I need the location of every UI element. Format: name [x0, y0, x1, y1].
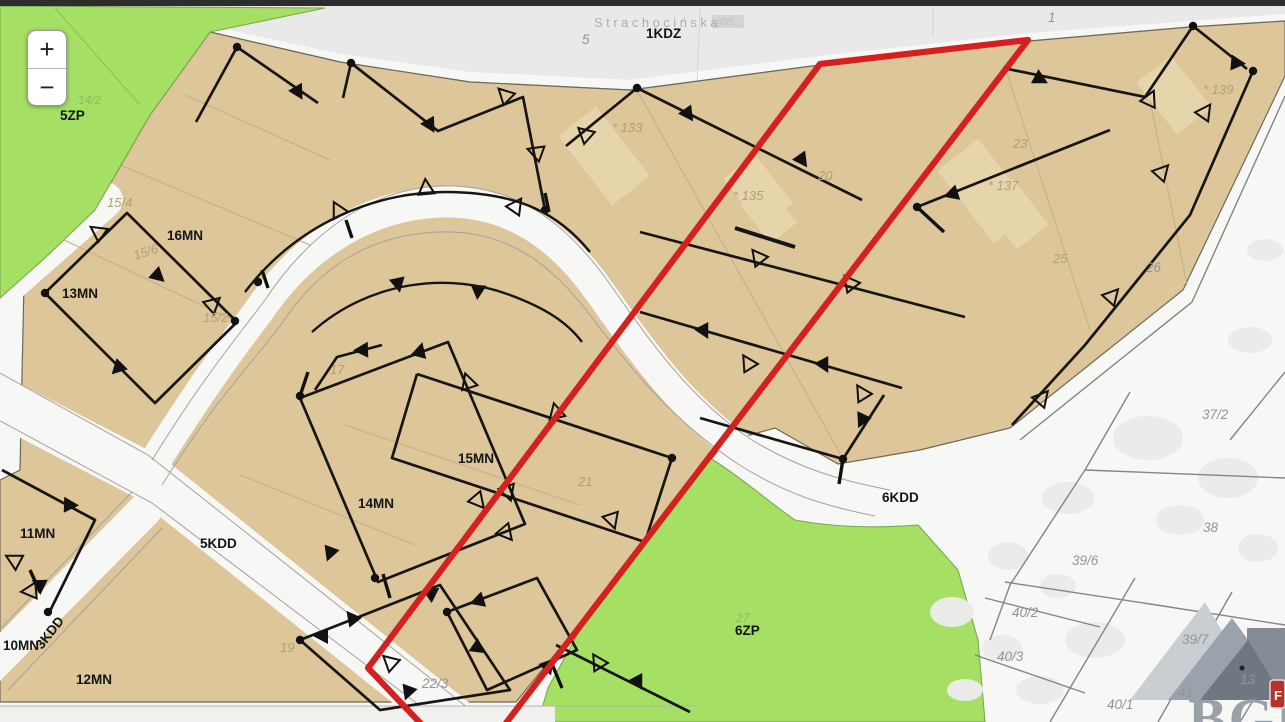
map-label-14-2: 14/2	[78, 93, 102, 107]
map-label-15-4: 15/4	[107, 195, 132, 210]
map-label-17: 17	[330, 362, 345, 377]
map-label-13mn: 13MN	[62, 286, 98, 301]
map-label-1: 1	[1048, 10, 1056, 25]
setback-node-dot	[633, 84, 641, 92]
setback-node-dot	[41, 289, 49, 297]
setback-node-dot	[443, 608, 451, 616]
map-label-40-3: 40/3	[997, 649, 1024, 664]
setback-node-dot	[1249, 67, 1257, 75]
setback-node-dot	[231, 317, 239, 325]
top-bar	[0, 0, 1285, 6]
map-label--133: * 133	[612, 120, 643, 135]
setback-node-dot	[44, 608, 52, 616]
map-label-11mn: 11MN	[20, 526, 55, 541]
setback-node-dot	[668, 454, 676, 462]
map-canvas[interactable]: BGM F 455 Strachocińska1KDZ515ZP14/216MN…	[0, 0, 1285, 722]
map-label-20: 20	[817, 168, 833, 183]
map-label-38: 38	[1203, 520, 1219, 535]
map-label--139: * 139	[1203, 82, 1233, 97]
map-label-12mn: 12MN	[76, 672, 112, 687]
map-label-6zp: 6ZP	[735, 623, 760, 638]
map-flag-badge[interactable]: F	[1270, 680, 1285, 708]
map-label-5: 5	[582, 32, 590, 47]
map-label-21: 21	[577, 474, 592, 489]
map-label-26: 26	[1145, 260, 1162, 275]
map-label-19: 19	[280, 640, 294, 655]
map-stage: BGM F 455 Strachocińska1KDZ515ZP14/216MN…	[0, 0, 1285, 722]
map-label-41: 41	[1178, 685, 1193, 700]
map-label-22-3: 22/3	[421, 676, 449, 691]
setback-node-dot	[371, 574, 379, 582]
setback-node-dot	[347, 59, 355, 67]
map-label--135: * 135	[733, 188, 764, 203]
map-label-15mn: 15MN	[458, 451, 494, 466]
zoom-in-button[interactable]: +	[28, 31, 66, 68]
setback-node-dot	[233, 43, 241, 51]
setback-node-dot	[1189, 22, 1197, 30]
map-label-37-2: 37/2	[1202, 407, 1229, 422]
map-label-40-1: 40/1	[1107, 697, 1133, 712]
map-label-25: 25	[1052, 251, 1068, 266]
map-label--137: * 137	[988, 178, 1019, 193]
map-label-5kdd: 5KDD	[200, 536, 237, 551]
map-label-1kdz: 1KDZ	[646, 26, 681, 41]
map-label-15-2: 15/2	[203, 310, 229, 325]
map-label-14mn: 14MN	[358, 496, 394, 511]
setback-node-dot	[296, 636, 304, 644]
map-label-6kdd: 6KDD	[882, 490, 919, 505]
map-label-39-7: 39/7	[1182, 632, 1209, 647]
map-label-40-2: 40/2	[1012, 605, 1039, 620]
map-label-10mn: 10MN	[3, 638, 39, 653]
map-label-27: 27	[735, 611, 751, 625]
map-label-23: 23	[1012, 136, 1028, 151]
map-label-13: 13	[1240, 672, 1256, 687]
zoom-out-button[interactable]: −	[28, 69, 66, 106]
flag-badge-letter: F	[1274, 688, 1282, 703]
map-label-16mn: 16MN	[167, 228, 203, 243]
zoom-control: + −	[27, 30, 67, 106]
map-label-5zp: 5ZP	[60, 108, 85, 123]
map-label-39-6: 39/6	[1072, 553, 1099, 568]
